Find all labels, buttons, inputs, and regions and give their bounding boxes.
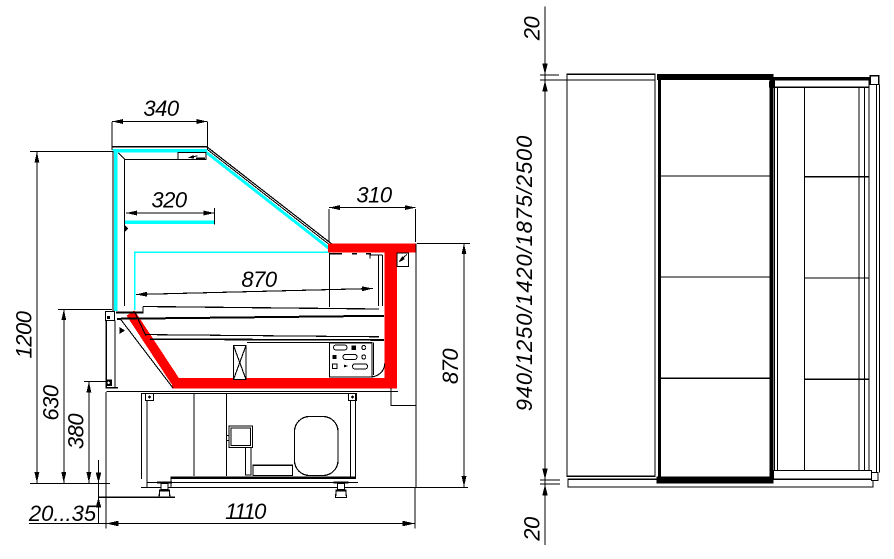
svg-text:870: 870 bbox=[241, 267, 277, 292]
svg-text:20: 20 bbox=[520, 16, 545, 42]
svg-text:1200: 1200 bbox=[12, 310, 37, 358]
svg-text:20: 20 bbox=[520, 516, 545, 542]
svg-text:310: 310 bbox=[356, 183, 392, 208]
svg-text:940/1250/1420/1875/2500: 940/1250/1420/1875/2500 bbox=[512, 135, 537, 411]
svg-text:380: 380 bbox=[64, 413, 89, 449]
svg-text:320: 320 bbox=[151, 188, 187, 213]
svg-text:20...35: 20...35 bbox=[28, 501, 97, 526]
svg-text:630: 630 bbox=[39, 384, 64, 420]
svg-text:340: 340 bbox=[143, 96, 179, 121]
svg-text:870: 870 bbox=[438, 348, 463, 384]
svg-text:1110: 1110 bbox=[225, 499, 267, 524]
